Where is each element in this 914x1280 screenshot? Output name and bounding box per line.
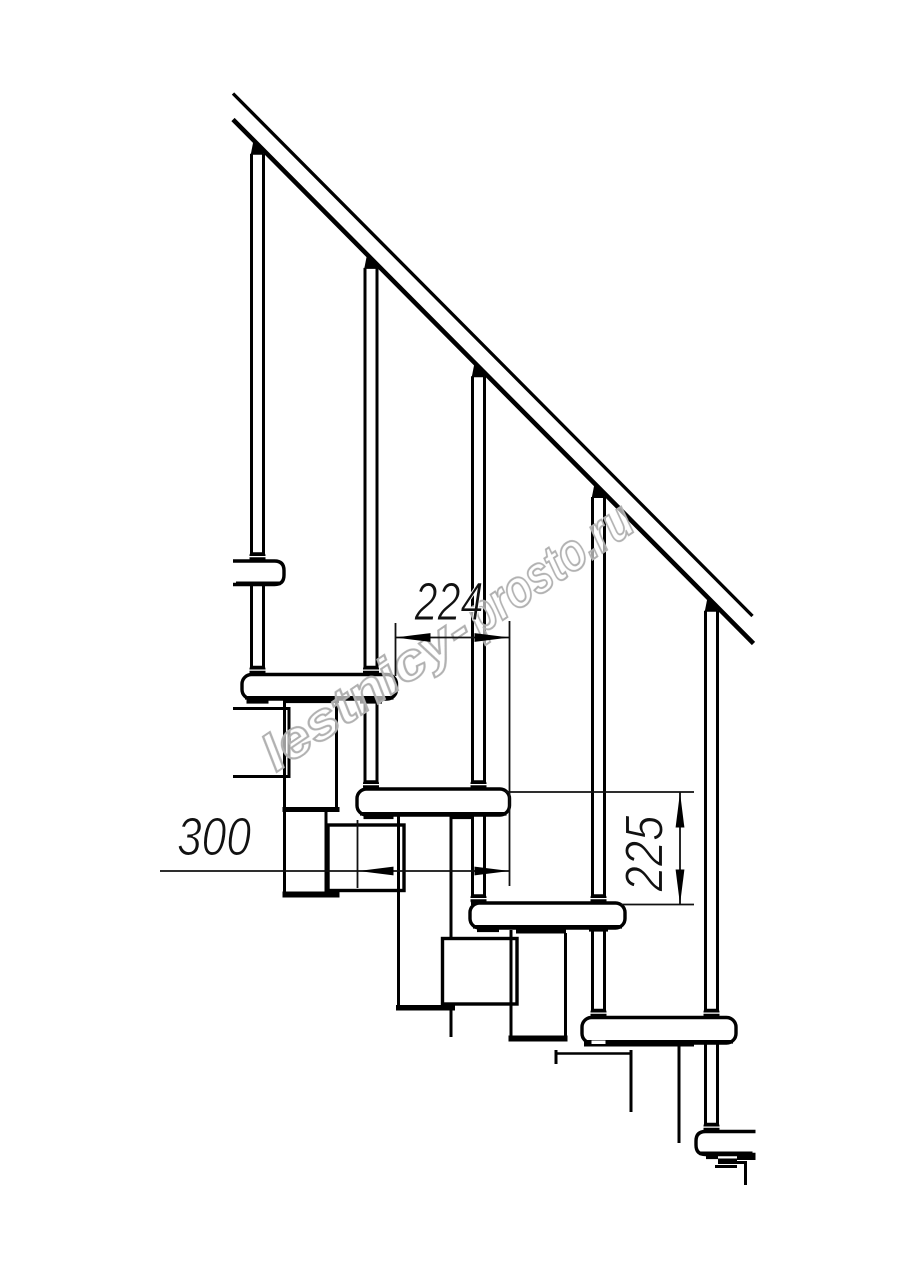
svg-text:300: 300 <box>177 807 251 867</box>
svg-text:225: 225 <box>615 815 675 893</box>
svg-text:224: 224 <box>414 572 484 632</box>
